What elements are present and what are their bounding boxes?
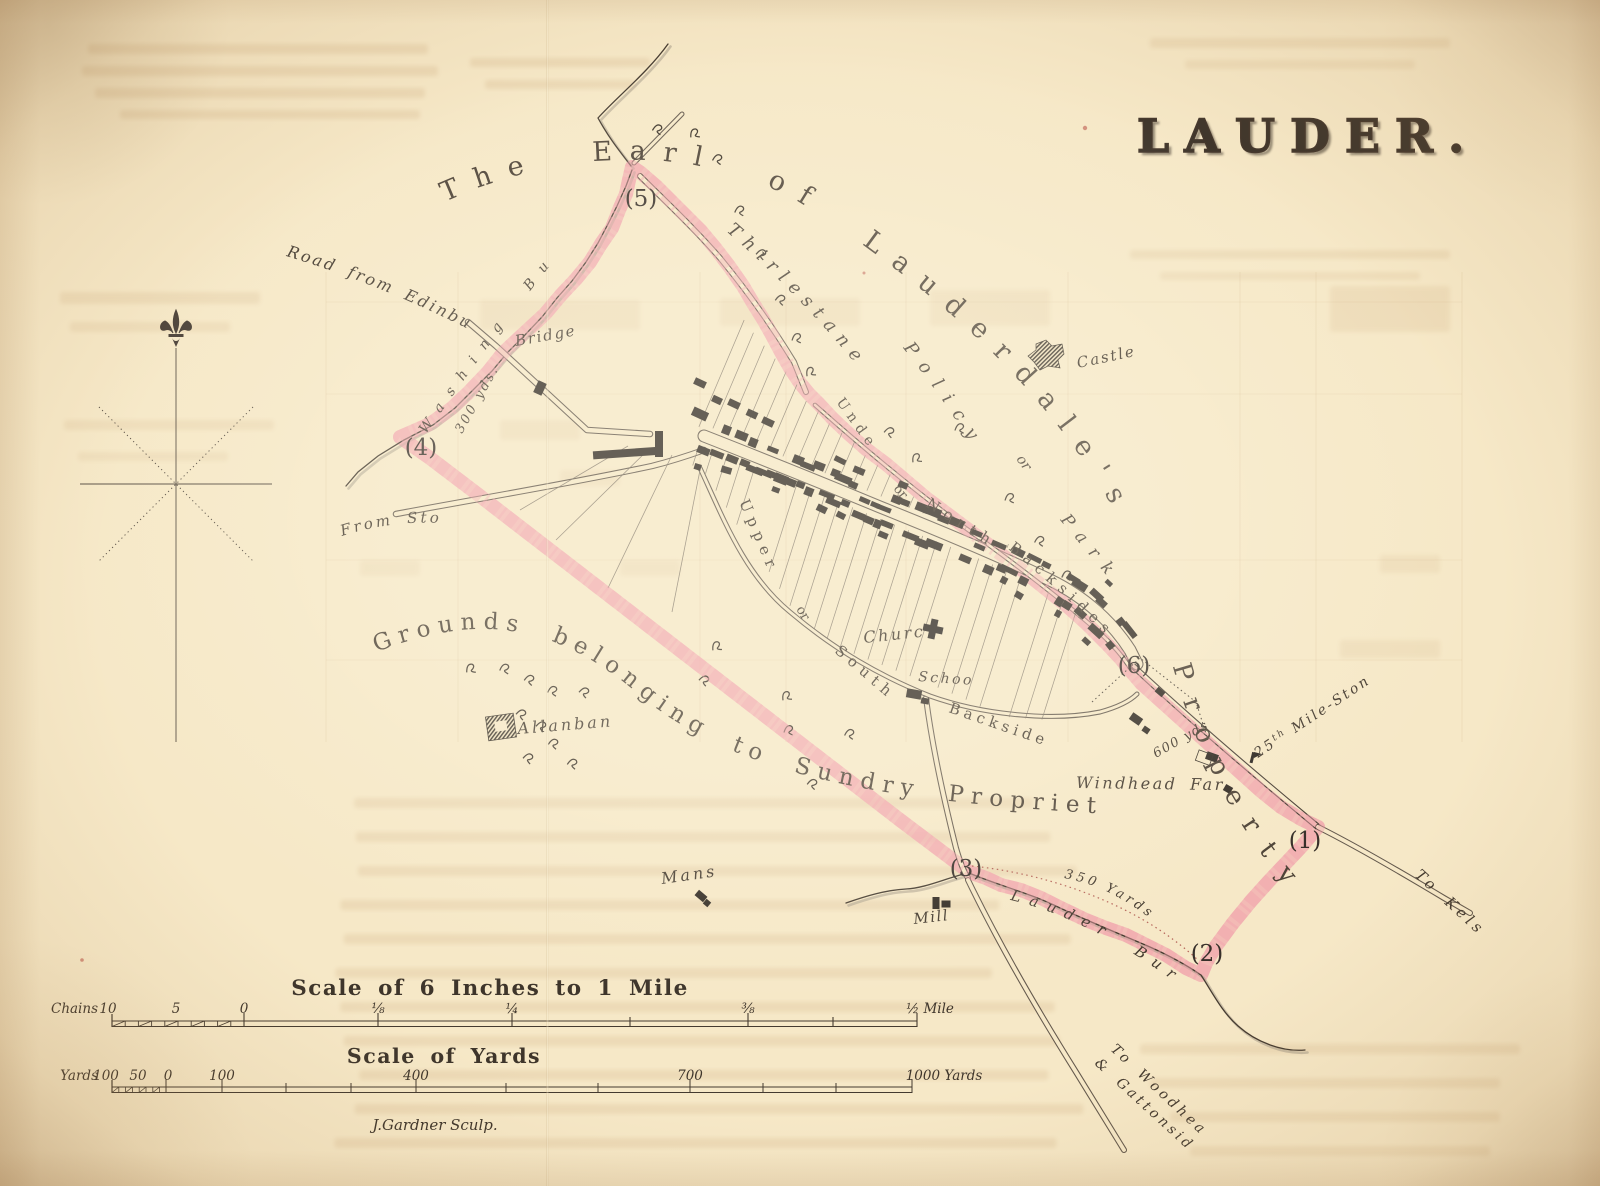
bleedthrough-text	[82, 66, 438, 76]
scale-mile-title: Scale of 6 Inches to 1 Mile	[291, 976, 689, 1001]
engraver-credit: J.Gardner Sculp.	[369, 1116, 497, 1134]
bleedthrough-text	[1330, 286, 1450, 332]
strip-north	[881, 474, 890, 496]
building	[803, 486, 814, 497]
strip-north	[1007, 544, 1009, 548]
bleedthrough-text	[78, 452, 228, 461]
building	[771, 486, 780, 494]
strip-south	[1026, 601, 1063, 719]
bleedthrough-text	[1130, 250, 1450, 259]
building	[879, 519, 893, 529]
strip-south	[896, 541, 937, 670]
bleedthrough-text	[356, 832, 1050, 842]
scale-hatch	[139, 1087, 146, 1093]
scale-hatch	[218, 1021, 231, 1027]
bleedthrough-text	[355, 1104, 1084, 1114]
allanbank-symbol	[485, 713, 516, 741]
bleedthrough-text	[360, 560, 420, 576]
building	[982, 564, 995, 576]
tree-icon	[522, 752, 534, 764]
tree-icon	[910, 453, 922, 465]
speck	[80, 958, 84, 962]
strip-north	[699, 320, 744, 427]
compass-rose	[80, 310, 272, 742]
boundary-pink-band	[400, 167, 1318, 975]
yards-tick-1000: 1000 Yards	[906, 1068, 983, 1084]
map-labels: The Earl of Lauderdale's Property Ground…	[0, 0, 1489, 1154]
tree-icon	[548, 738, 559, 749]
building	[709, 449, 724, 460]
building	[958, 553, 972, 564]
station-3: (3)	[950, 856, 983, 882]
scale-hatch	[138, 1021, 151, 1027]
bleedthrough-text	[60, 292, 260, 304]
strip-south	[827, 513, 867, 638]
bleedthrough-text	[1170, 1112, 1500, 1122]
building	[1141, 726, 1150, 735]
tree-icon	[710, 641, 722, 653]
building	[1081, 636, 1091, 646]
park-or-label: or	[1013, 452, 1036, 475]
building	[1014, 590, 1024, 600]
chains-tick-10: 10	[99, 1001, 117, 1017]
strip-south	[1042, 609, 1077, 719]
boundary-pink-core	[400, 167, 1318, 975]
building	[1054, 609, 1063, 618]
bleedthrough-text	[88, 44, 428, 54]
street-or-south: or	[793, 604, 813, 624]
building	[734, 430, 749, 442]
tree-icon	[1034, 536, 1044, 547]
scale-hatch	[112, 1087, 119, 1093]
policy-label: Policy	[898, 337, 989, 453]
station-5: (5)	[625, 186, 658, 212]
building	[593, 447, 661, 460]
bleedthrough-text	[120, 110, 420, 119]
tree-icon	[1005, 494, 1014, 503]
tree-icon	[844, 729, 854, 740]
strip-south	[780, 490, 811, 589]
street-upper: Upper	[735, 497, 782, 576]
bleedthrough-text	[95, 88, 425, 98]
tree-icon	[547, 686, 557, 696]
station-2: (2)	[1191, 941, 1224, 967]
bleedthrough-text	[1150, 38, 1450, 48]
boundary-dotdash	[400, 167, 1318, 975]
strip-south	[910, 547, 951, 676]
strip-south	[882, 536, 923, 665]
building	[711, 395, 723, 406]
bleedthrough-text	[485, 80, 635, 89]
tree-icon	[515, 708, 527, 720]
building	[727, 398, 741, 409]
building	[747, 437, 758, 448]
building	[1129, 712, 1143, 725]
tree-icon	[804, 366, 816, 378]
map-title: LAUDER. LAUDER.	[1137, 109, 1482, 166]
tree-icon	[465, 663, 476, 674]
strip-south	[803, 501, 839, 615]
strip-south	[938, 558, 979, 687]
field-line	[672, 470, 700, 612]
tree-icon	[578, 686, 590, 698]
bleedthrough-text	[70, 322, 230, 332]
scale-yards-title: Scale of Yards	[347, 1044, 541, 1068]
building	[836, 511, 847, 521]
strip-north	[811, 423, 830, 467]
bleedthrough-text	[1340, 640, 1440, 658]
scale-hatch	[153, 1087, 160, 1093]
bleedthrough-text	[1150, 1078, 1500, 1088]
bleedthrough-text	[1185, 60, 1415, 69]
speck	[1083, 126, 1087, 130]
tree-icon	[883, 426, 895, 438]
strip-north	[867, 465, 878, 491]
station-6: (6)	[1118, 653, 1151, 679]
chains-unit-label: Chains	[51, 1001, 98, 1017]
strip-south	[1009, 592, 1049, 717]
bleedthrough-text	[1140, 1044, 1520, 1054]
building	[999, 576, 1008, 585]
bleedthrough-text	[64, 420, 274, 430]
bleedthrough-text	[1380, 555, 1440, 573]
bleedthrough-text	[334, 1138, 1056, 1148]
scale-hatch	[191, 1021, 204, 1027]
building	[834, 455, 847, 465]
landmark-symbols	[485, 340, 1262, 765]
title-text: LAUDER.	[1137, 109, 1479, 163]
station-4: (4)	[405, 435, 438, 461]
fleur-de-lis-icon	[161, 310, 192, 347]
bleedthrough-text	[500, 420, 580, 440]
yards-tick-0: 0	[164, 1068, 173, 1084]
manse-label: Manse	[0, 0, 718, 888]
strip-south	[716, 456, 727, 490]
speck	[863, 272, 866, 275]
bleedthrough-text	[1190, 1146, 1490, 1156]
bleedthrough-text	[344, 934, 1071, 944]
tree-icon	[735, 206, 745, 216]
street-south: South	[831, 641, 900, 703]
building	[746, 409, 759, 420]
strip-north	[741, 359, 775, 440]
tree-icon	[567, 758, 578, 769]
chains-tick-5: 5	[172, 1001, 181, 1017]
antique-town-plan: The Earl of Lauderdale's Property Ground…	[0, 0, 1600, 1186]
tree-icon	[689, 128, 700, 140]
bleedthrough-text	[470, 58, 650, 67]
scale-hatch	[126, 1087, 133, 1093]
strip-north	[727, 346, 764, 434]
building	[655, 431, 663, 457]
building	[816, 503, 828, 514]
strip-north	[825, 433, 842, 473]
strip-south	[790, 496, 825, 606]
building	[767, 445, 779, 454]
building	[852, 465, 865, 476]
building	[877, 530, 888, 539]
yards-tick-50: 50	[129, 1068, 147, 1084]
building	[720, 465, 732, 474]
chains-tick-half: ½ Mile	[906, 1001, 954, 1017]
yards-tick-100l: 100	[93, 1068, 119, 1084]
tree-icon	[792, 334, 801, 343]
castle-label: Castle	[1075, 342, 1137, 372]
strip-south	[980, 577, 1021, 706]
bleedthrough-text	[341, 900, 1000, 910]
bleedthrough-text	[620, 560, 680, 576]
bleedthrough-text	[1160, 272, 1420, 280]
scale-hatch	[112, 1021, 125, 1027]
scale-hatch	[165, 1021, 178, 1027]
page-bleedthrough	[60, 38, 1520, 1156]
parish-boundary	[400, 167, 1318, 975]
strip-north	[755, 372, 786, 446]
tree-icon	[523, 674, 534, 686]
strip-north	[797, 410, 819, 462]
strip-south	[814, 507, 852, 629]
field-line	[556, 450, 648, 540]
tree-icon	[499, 664, 509, 674]
map-canvas: The Earl of Lauderdale's Property Ground…	[0, 0, 1600, 1186]
station-1: (1)	[1289, 828, 1322, 854]
